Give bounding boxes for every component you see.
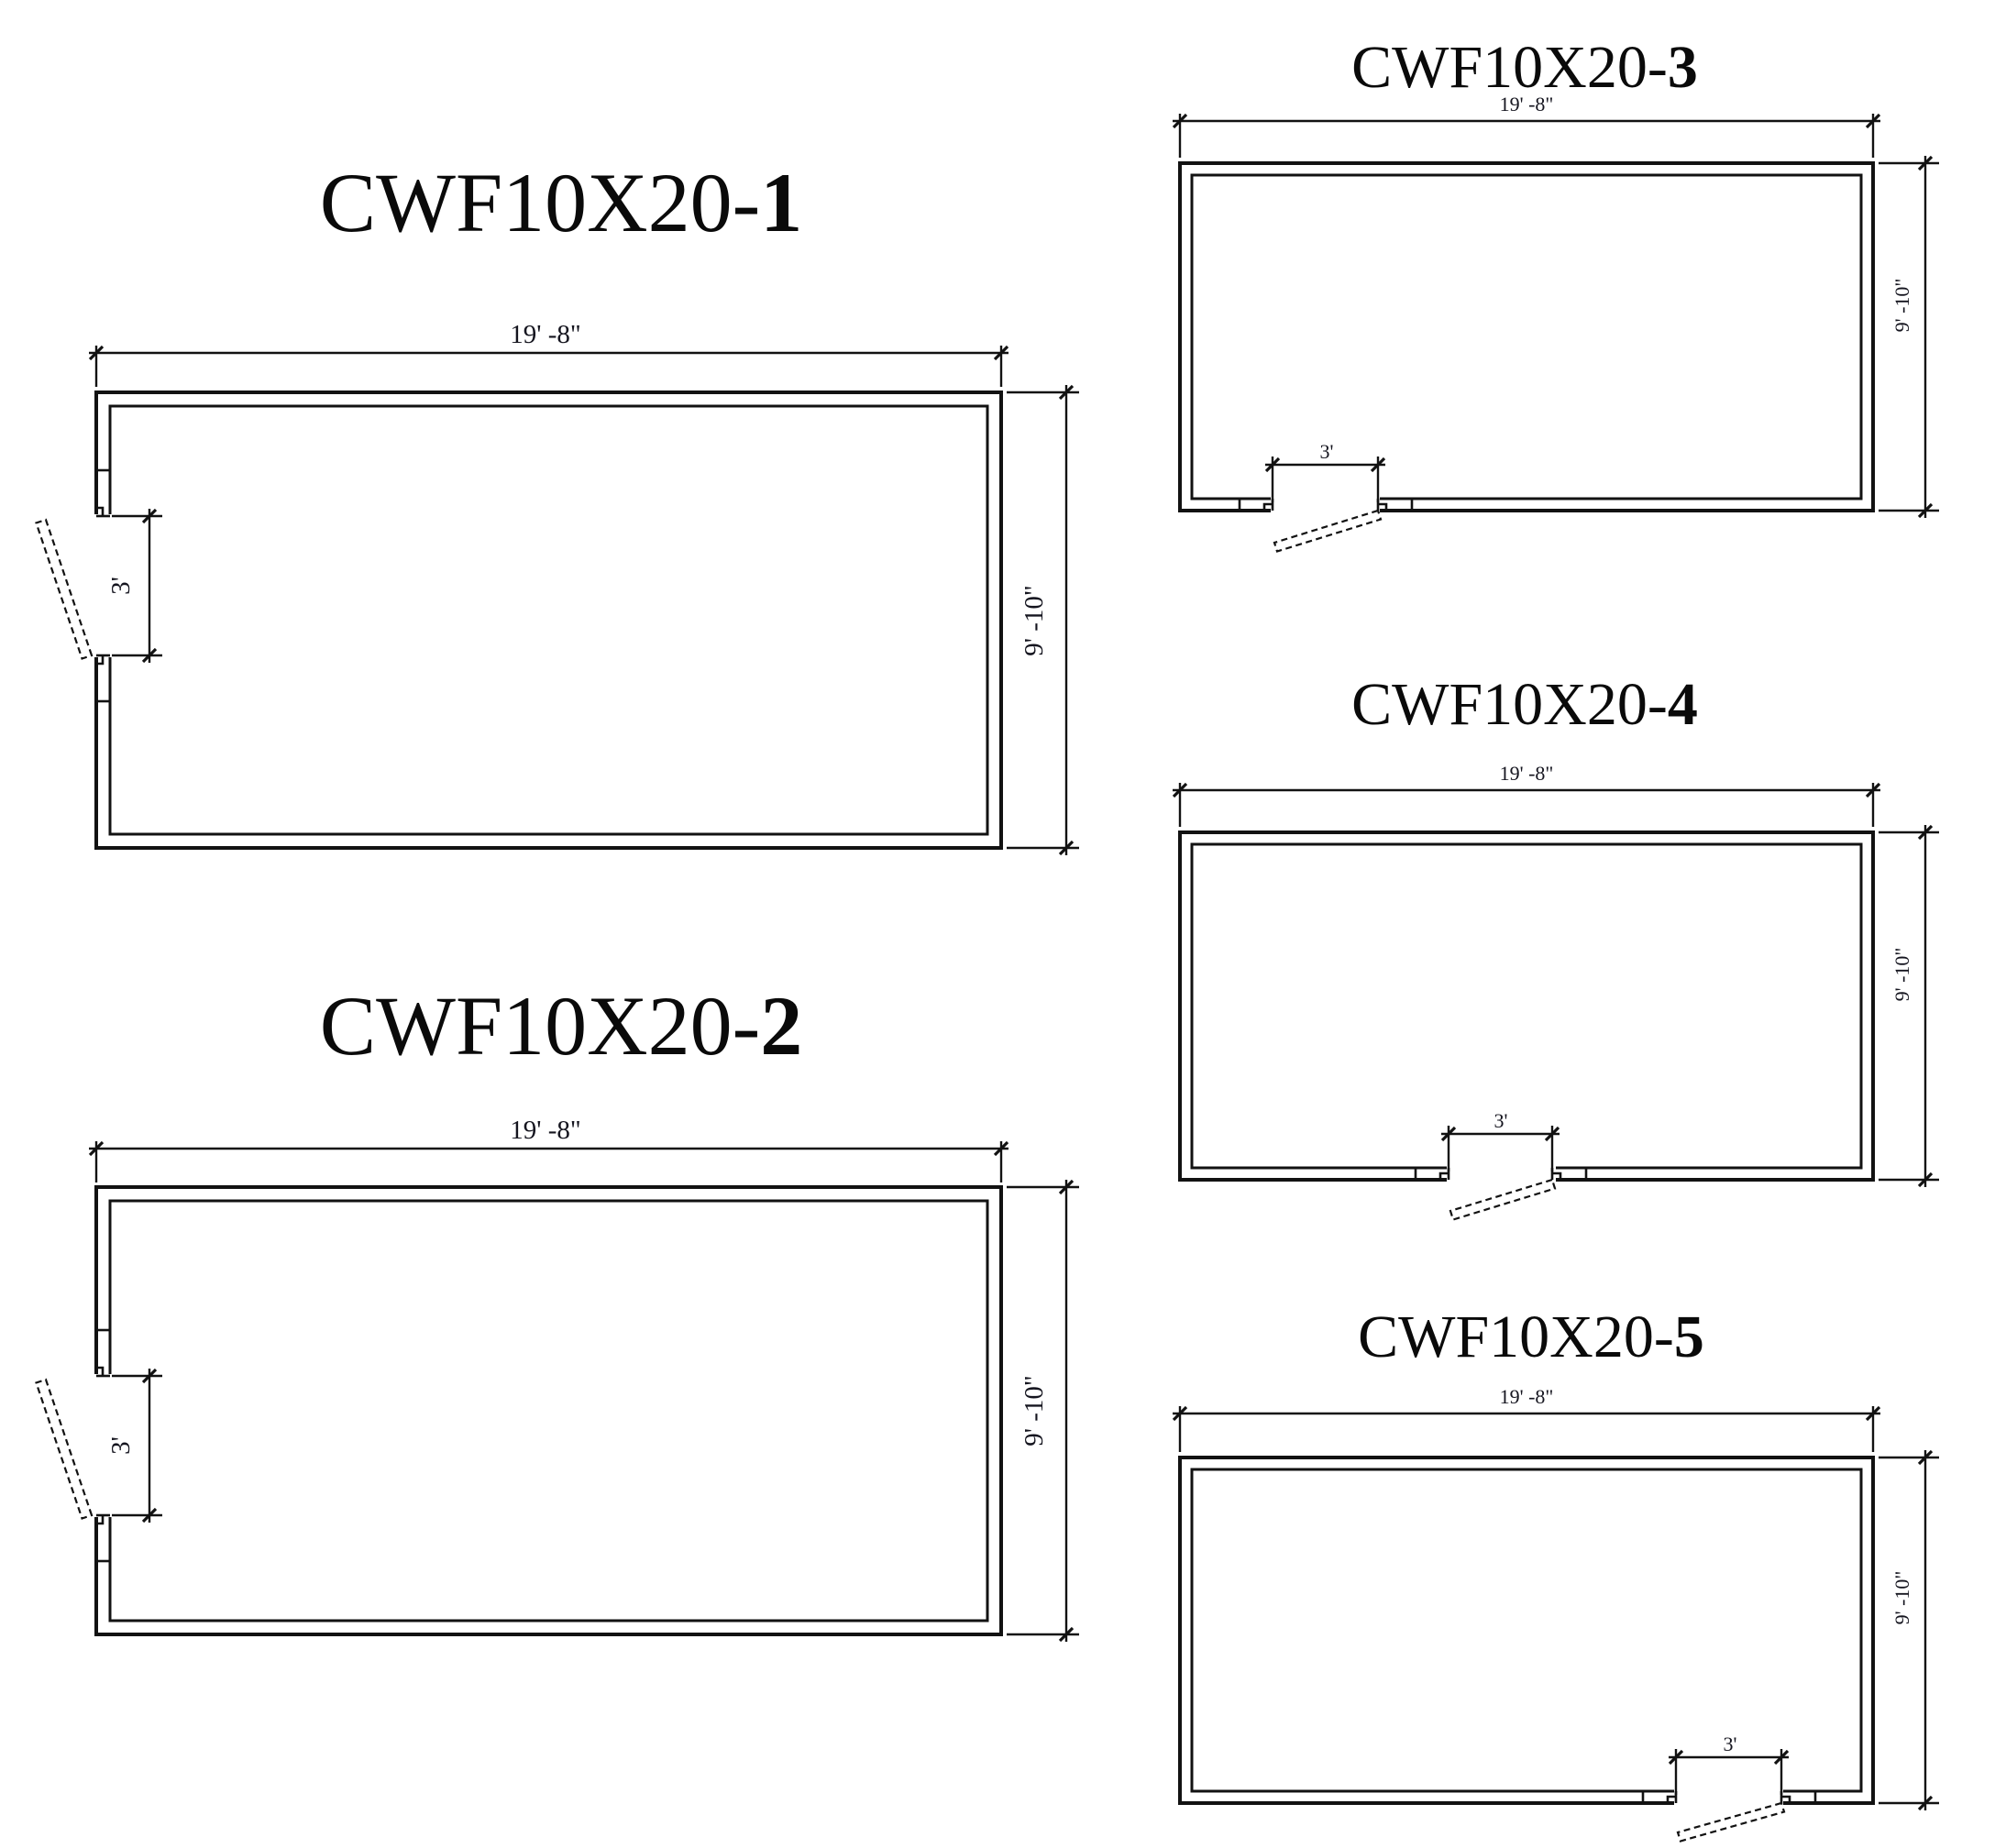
outer-wall [1180, 163, 1873, 511]
width-dimension: 19' -8" [1173, 762, 1880, 827]
inner-wall [1192, 844, 1861, 1168]
door-leaf [1678, 1803, 1784, 1842]
plan-title: CWF10X20-5 [1358, 1303, 1704, 1370]
width-dimension-label: 19' -8" [1500, 93, 1554, 115]
width-dimension: 19' -8" [1173, 93, 1880, 158]
door-width-label: 3' [106, 577, 136, 595]
door-width-dimension: 3' [106, 1369, 162, 1523]
height-dimension: 9' -10" [1879, 1450, 1939, 1810]
inner-wall [110, 406, 987, 834]
outer-wall [1180, 1457, 1873, 1803]
door-width-dimension: 3' [106, 509, 162, 663]
door-opening [1271, 495, 1380, 514]
height-dimension: 9' -10" [1007, 385, 1079, 855]
door-width-dimension: 3' [1441, 1109, 1560, 1171]
height-dimension-label: 9' -10" [1020, 1375, 1049, 1446]
plan-cwf10x20-4: CWF10X20-4 19' -8" 9' -10" [1173, 671, 1939, 1220]
outer-wall [96, 1187, 1001, 1634]
plan-cwf10x20-3: CWF10X20-3 19' -8" 9' -10" [1173, 34, 1939, 552]
door-leaf [37, 1380, 93, 1519]
inner-wall [110, 1201, 987, 1621]
height-dimension: 9' -10" [1879, 825, 1939, 1187]
width-dimension: 19' -8" [89, 1116, 1009, 1182]
height-dimension: 9' -10" [1879, 156, 1939, 518]
door-leaf [1274, 511, 1381, 552]
door-width-label: 3' [1724, 1732, 1737, 1755]
plan-title: CWF10X20-1 [320, 156, 802, 249]
height-dimension-label: 9' -10" [1020, 585, 1049, 655]
width-dimension: 19' -8" [89, 320, 1009, 387]
height-dimension-label: 9' -10" [1890, 948, 1913, 1002]
door-leaf [1450, 1180, 1555, 1220]
width-dimension-label: 19' -8" [510, 320, 580, 349]
plan-cwf10x20-5: CWF10X20-5 19' -8" 9' -10" [1173, 1303, 1939, 1842]
door-leaf [37, 520, 93, 659]
width-dimension-label: 19' -8" [510, 1116, 580, 1145]
inner-wall [1192, 1469, 1861, 1791]
width-dimension: 19' -8" [1173, 1385, 1880, 1452]
width-dimension-label: 19' -8" [1500, 762, 1554, 785]
outer-wall [1180, 832, 1873, 1180]
height-dimension-label: 9' -10" [1890, 1571, 1913, 1625]
plan-title: CWF10X20-3 [1351, 34, 1698, 101]
door-width-label: 3' [106, 1436, 136, 1455]
drawing-sheet: { "page": { "background": "#ffffff", "li… [0, 0, 1995, 1848]
outer-wall [96, 392, 1001, 848]
floor-plan-sheet: CWF10X20-1 19' -8" [0, 0, 1995, 1848]
door-width-dimension: 3' [1669, 1732, 1789, 1795]
plan-cwf10x20-2: CWF10X20-2 19' -8" 9' -10" [37, 979, 1080, 1642]
door-width-dimension: 3' [1265, 440, 1385, 502]
door-width-label: 3' [1320, 440, 1334, 463]
inner-wall [1192, 175, 1861, 499]
plan-cwf10x20-1: CWF10X20-1 19' -8" [37, 156, 1080, 855]
plan-title: CWF10X20-4 [1351, 671, 1698, 738]
door-width-label: 3' [1494, 1109, 1508, 1132]
door-opening [1447, 1164, 1556, 1183]
plan-title: CWF10X20-2 [320, 979, 802, 1072]
door-opening [1674, 1787, 1783, 1807]
width-dimension-label: 19' -8" [1500, 1385, 1554, 1408]
height-dimension: 9' -10" [1007, 1180, 1079, 1642]
height-dimension-label: 9' -10" [1890, 279, 1913, 333]
